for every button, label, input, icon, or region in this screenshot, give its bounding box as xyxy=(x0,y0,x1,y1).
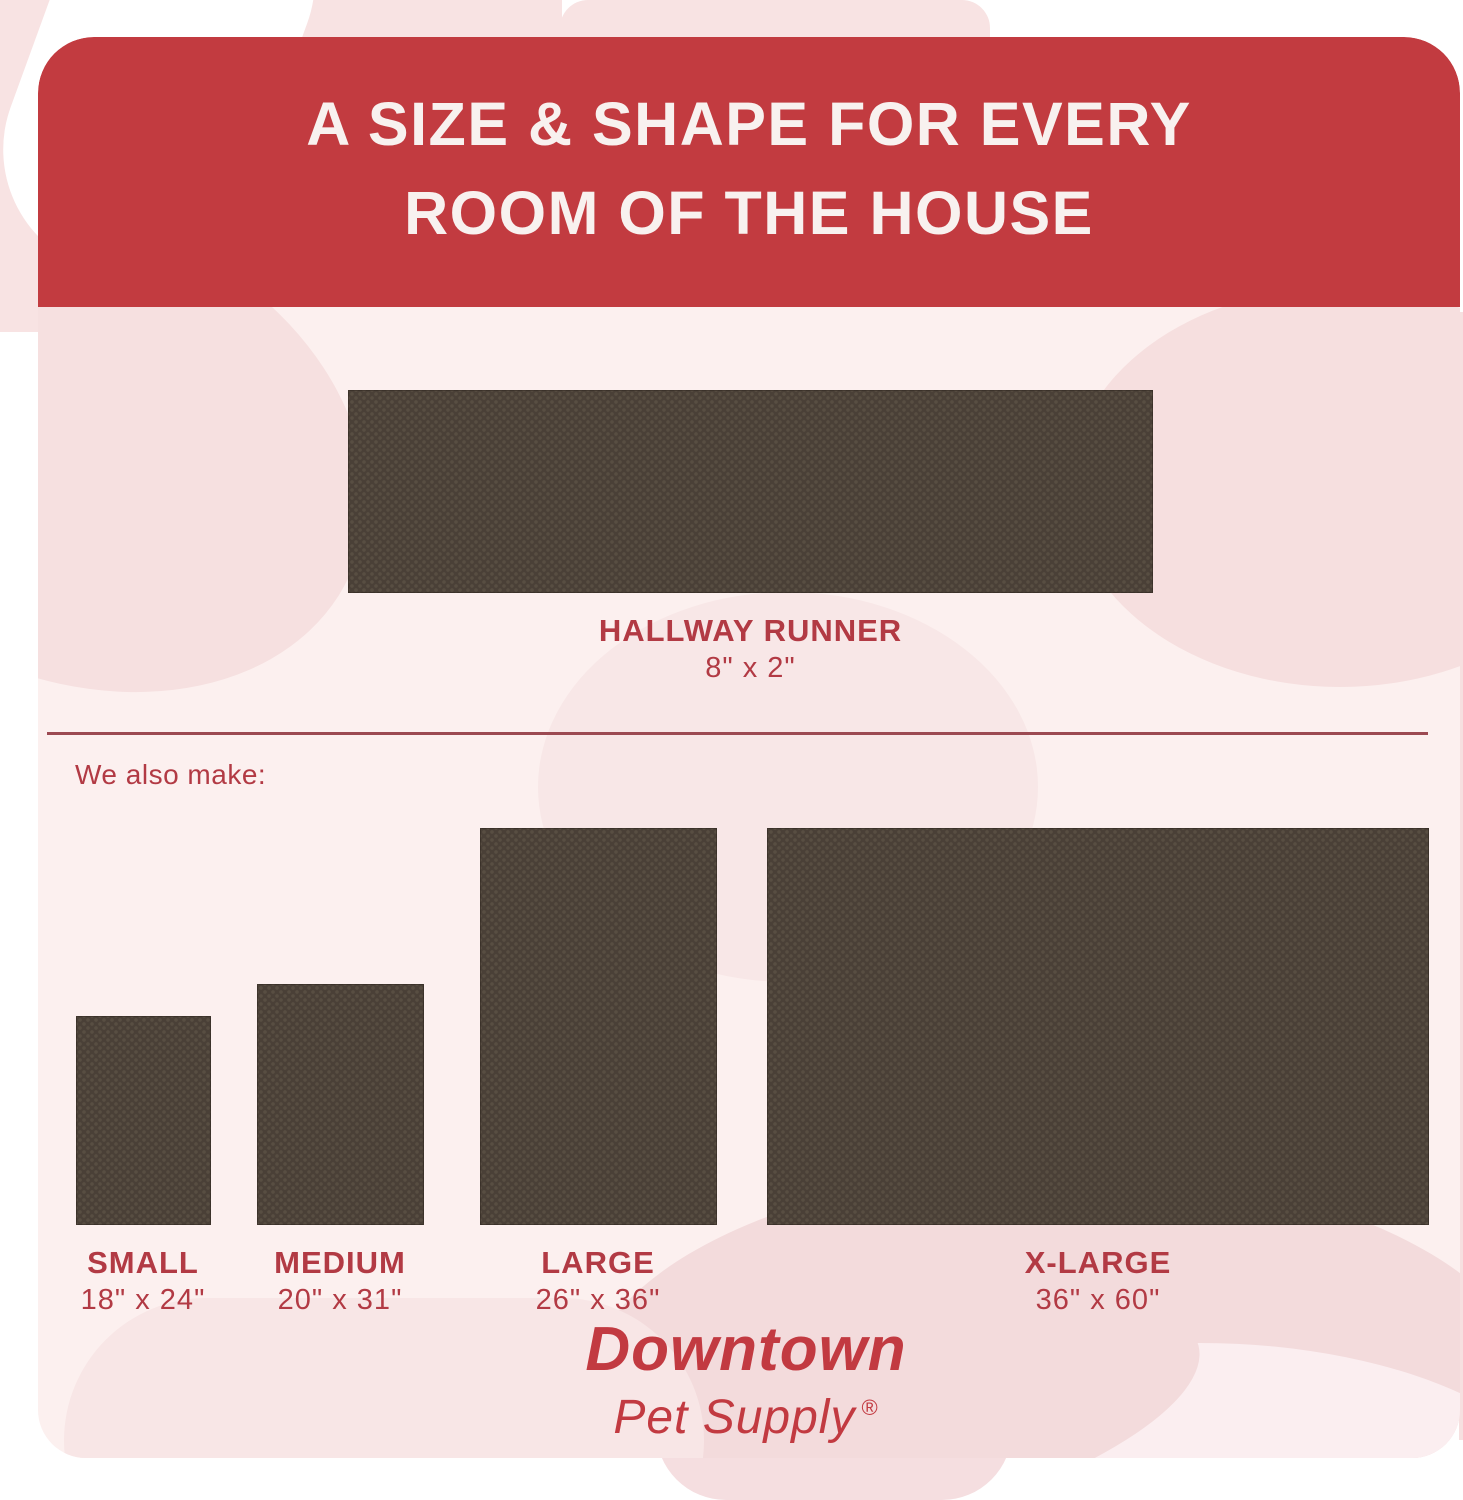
large-size-dimensions: 26" x 36" xyxy=(448,1283,748,1317)
medium-mat xyxy=(257,984,424,1225)
medium-size-name: MEDIUM xyxy=(190,1245,490,1281)
large-mat xyxy=(480,828,717,1225)
hallway-runner-label: HALLWAY RUNNER 8" x 2" xyxy=(348,613,1153,685)
hallway-runner-name: HALLWAY RUNNER xyxy=(348,613,1153,649)
brand-name-downtown: Downtown xyxy=(446,1317,1046,1383)
brand-logo: Downtown Pet Supply® xyxy=(446,1317,1046,1443)
title-line-2: ROOM OF THE HOUSE xyxy=(38,169,1460,258)
section-divider xyxy=(47,732,1428,735)
small-mat xyxy=(76,1016,211,1225)
content-card: A SIZE & SHAPE FOR EVERY ROOM OF THE HOU… xyxy=(38,37,1460,1458)
hallway-runner-mat xyxy=(348,390,1153,593)
brand-name-pet-supply: Pet Supply xyxy=(613,1391,855,1444)
large-label: LARGE 26" x 36" xyxy=(448,1245,748,1317)
header-banner: A SIZE & SHAPE FOR EVERY ROOM OF THE HOU… xyxy=(38,37,1460,307)
xlarge-label: X-LARGE 36" x 60" xyxy=(948,1245,1248,1317)
size-guide-infographic: A SIZE & SHAPE FOR EVERY ROOM OF THE HOU… xyxy=(0,0,1463,1500)
medium-label: MEDIUM 20" x 31" xyxy=(190,1245,490,1317)
title-line-1: A SIZE & SHAPE FOR EVERY xyxy=(38,80,1460,169)
also-make-label: We also make: xyxy=(75,759,266,791)
brand-name-pet-supply-line: Pet Supply® xyxy=(446,1383,1046,1443)
medium-size-dimensions: 20" x 31" xyxy=(190,1283,490,1317)
registered-trademark-icon: ® xyxy=(861,1395,878,1420)
background-shape-top-center xyxy=(560,0,990,42)
xlarge-mat xyxy=(767,828,1429,1225)
large-size-name: LARGE xyxy=(448,1245,748,1281)
xlarge-size-dimensions: 36" x 60" xyxy=(948,1283,1248,1317)
xlarge-size-name: X-LARGE xyxy=(948,1245,1248,1281)
hallway-runner-dimensions: 8" x 2" xyxy=(348,651,1153,685)
